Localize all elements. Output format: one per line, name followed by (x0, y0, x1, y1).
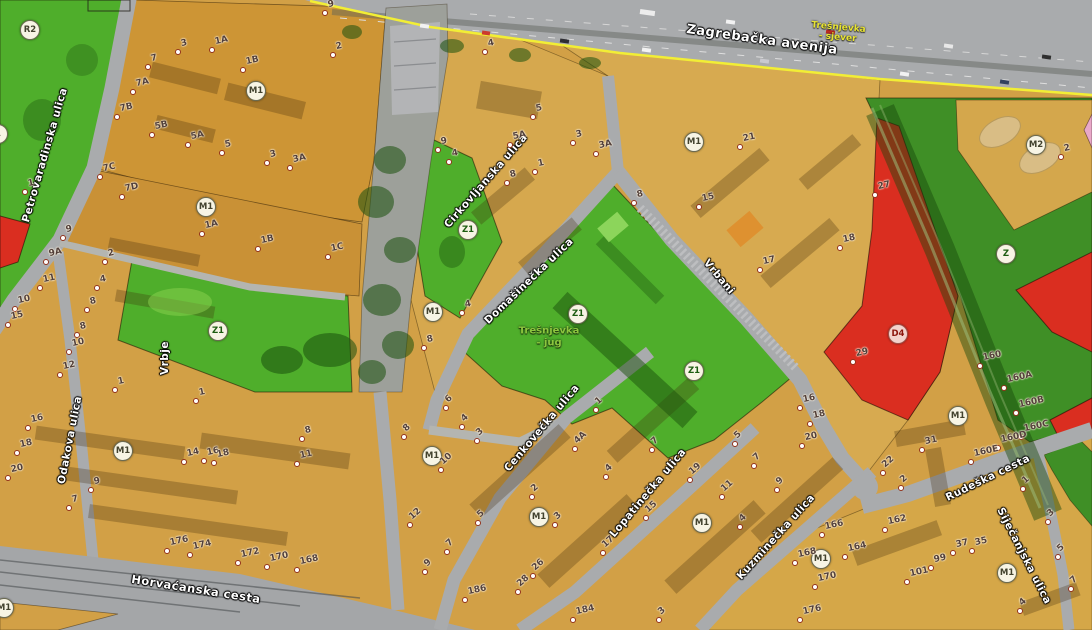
house-number-label: 5A (190, 129, 205, 142)
address-dot-icon (751, 463, 757, 469)
address-dot-icon (459, 310, 465, 316)
address-dot-icon (919, 447, 925, 453)
house-number-label: 3 (474, 426, 485, 438)
address-dot-icon (507, 142, 513, 148)
house-number-label: 160E (973, 444, 999, 459)
house-number-label: 22 (880, 454, 896, 470)
address-dot-icon (1068, 586, 1074, 592)
address-dot-icon (1058, 154, 1064, 160)
house-number-label: 4 (99, 274, 107, 285)
house-number-label: 3 (575, 129, 583, 140)
address-dot-icon (1013, 410, 1019, 416)
house-number-label: 3 (269, 149, 277, 160)
house-number-label: 176 (169, 534, 189, 548)
house-number-label: 2 (898, 473, 909, 485)
address-dot-icon (797, 617, 803, 623)
house-number-label: 8 (89, 296, 97, 307)
zone-code-badge-z1-4[interactable]: Z1 (208, 321, 228, 341)
address-dot-icon (807, 421, 813, 427)
house-number-label: 5 (224, 139, 232, 150)
street-label-horva-anska-cesta: Horvaćanska cesta (130, 572, 261, 606)
address-dot-icon (330, 52, 336, 58)
house-number-label: 8 (426, 334, 434, 345)
address-dot-icon (114, 114, 120, 120)
house-number-label: 170 (817, 570, 837, 584)
address-dot-icon (797, 405, 803, 411)
house-number-label: 4A (572, 430, 589, 446)
house-number-label: 4 (1017, 596, 1028, 608)
house-number-label: 186 (467, 583, 487, 597)
address-dot-icon (732, 441, 738, 447)
address-dot-icon (530, 573, 536, 579)
house-number-label: 7 (751, 451, 762, 463)
zone-code-badge-m1-20[interactable]: M1 (0, 598, 14, 618)
house-number-label: 174 (192, 538, 212, 552)
address-dot-icon (504, 180, 510, 186)
address-dot-icon (474, 438, 480, 444)
address-dot-icon (209, 47, 215, 53)
house-number-label: 5 (732, 429, 743, 441)
address-dot-icon (737, 524, 743, 530)
address-dot-icon (819, 532, 825, 538)
house-number-label: 9 (422, 557, 433, 569)
house-number-label: 28 (515, 573, 531, 589)
zone-code-badge-z1-8[interactable]: Z1 (684, 361, 704, 381)
address-dot-icon (882, 527, 888, 533)
house-number-label: 7 (444, 537, 455, 549)
house-number-label: 9 (65, 224, 73, 235)
address-dot-icon (185, 142, 191, 148)
address-dot-icon (649, 447, 655, 453)
house-number-label: 164 (847, 540, 867, 554)
address-dot-icon (774, 487, 780, 493)
house-number-label: 1B (245, 54, 260, 67)
zone-code-badge-z1-5[interactable]: Z1 (458, 220, 478, 240)
address-dot-icon (529, 494, 535, 500)
address-dot-icon (219, 150, 225, 156)
street-label-kuzmine-ka-ulica: Kuzminečka ulica (735, 492, 818, 582)
house-number-label: 1A (214, 34, 229, 47)
area-label-tre-njevka-jug: Trešnjevka- jug (519, 326, 580, 349)
address-dot-icon (438, 467, 444, 473)
house-number-label: 31 (924, 435, 938, 447)
address-dot-icon (102, 259, 108, 265)
area-label-line: Trešnjevka (519, 326, 580, 338)
address-dot-icon (14, 450, 20, 456)
address-dot-icon (757, 267, 763, 273)
house-number-label: 4 (459, 412, 470, 424)
house-number-label: 4 (603, 462, 614, 474)
house-number-label: 176 (802, 603, 822, 617)
address-dot-icon (164, 548, 170, 554)
address-dot-icon (25, 425, 31, 431)
address-dot-icon (593, 407, 599, 413)
address-dot-icon (950, 550, 956, 556)
address-dot-icon (603, 474, 609, 480)
house-number-label: 17 (762, 255, 776, 267)
house-number-label: 9A (48, 246, 63, 259)
house-number-label: 3 (656, 605, 667, 617)
address-dot-icon (43, 259, 49, 265)
area-label-line: - jug (519, 337, 580, 349)
street-label-vrbani: Vrbani (701, 257, 737, 297)
house-number-label: 8 (509, 169, 517, 180)
zone-code-badge-m2-10[interactable]: M2 (1026, 135, 1046, 155)
zone-code-badge-d4-12[interactable]: D4 (888, 324, 908, 344)
house-number-label: 9 (774, 475, 785, 487)
address-dot-icon (475, 520, 481, 526)
area-label-tre-njevka-sjever: Trešnjevka- sjever (810, 20, 866, 45)
address-dot-icon (1001, 385, 1007, 391)
house-number-label: 2 (1063, 143, 1071, 154)
address-dot-icon (187, 552, 193, 558)
zone-code-badge-z-11[interactable]: Z (996, 244, 1016, 264)
house-number-label: 101 (909, 565, 929, 579)
house-number-label: 21 (742, 132, 756, 144)
address-dot-icon (287, 165, 293, 171)
house-number-label: 26 (530, 557, 546, 573)
address-dot-icon (264, 160, 270, 166)
address-dot-icon (600, 550, 606, 556)
address-dot-icon (299, 436, 305, 442)
house-number-label: 1 (1020, 474, 1031, 486)
house-number-label: 3 (552, 510, 563, 522)
house-number-label: 8 (636, 189, 644, 200)
address-dot-icon (60, 235, 66, 241)
address-dot-icon (97, 174, 103, 180)
address-dot-icon (119, 194, 125, 200)
address-dot-icon (572, 446, 578, 452)
house-number-label: 162 (887, 513, 907, 527)
house-number-label: 18 (19, 438, 33, 450)
address-dot-icon (880, 470, 886, 476)
house-number-label: 160D (1000, 430, 1028, 445)
house-number-label: 9 (327, 0, 335, 10)
address-dot-icon (532, 169, 538, 175)
house-number-label: 1 (117, 376, 125, 387)
address-dot-icon (799, 443, 805, 449)
house-number-label: 17 (600, 534, 616, 550)
house-number-label: 1C (330, 242, 345, 254)
address-dot-icon (444, 549, 450, 555)
address-dot-icon (446, 159, 452, 165)
street-label-doma-ine-ka-ulica: Domašinečka ulica (482, 235, 576, 326)
address-dot-icon (593, 151, 599, 157)
zone-code-badge-m1-19[interactable]: M1 (997, 563, 1017, 583)
house-number-label: 14 (186, 447, 200, 459)
house-number-label: 5 (535, 103, 543, 114)
house-number-label: 11 (299, 449, 313, 461)
map-viewport[interactable]: Petrovaradinska ulicaOdakova ulicaCirkov… (0, 0, 1092, 630)
house-number-label: 12 (407, 506, 423, 522)
house-number-label: 20 (10, 463, 24, 475)
house-number-label: 11 (42, 273, 56, 285)
house-number-label: 4 (464, 299, 472, 310)
address-dot-icon (145, 64, 151, 70)
address-dot-icon (812, 584, 818, 590)
address-dot-icon (37, 285, 43, 291)
street-label-vrbje: Vrbje (159, 341, 171, 375)
address-dot-icon (325, 254, 331, 260)
house-number-label: 4 (451, 148, 459, 159)
house-number-label: 8 (304, 425, 312, 436)
house-number-label: 160C (1023, 419, 1050, 434)
address-dot-icon (264, 564, 270, 570)
zone-code-badge-m1-14[interactable]: M1 (113, 441, 133, 461)
map-label-layer: Petrovaradinska ulicaOdakova ulicaCirkov… (0, 0, 1092, 630)
address-dot-icon (842, 554, 848, 560)
house-number-label: 2 (335, 41, 343, 52)
address-dot-icon (570, 140, 576, 146)
address-dot-icon (66, 505, 72, 511)
address-dot-icon (719, 494, 725, 500)
zone-code-badge-r2-0[interactable]: R2 (20, 20, 40, 40)
address-dot-icon (199, 231, 205, 237)
area-label-line: - sjever (810, 31, 865, 46)
house-number-label: 1 (198, 387, 206, 398)
house-number-label: 5 (1055, 542, 1066, 554)
address-dot-icon (631, 200, 637, 206)
address-dot-icon (968, 459, 974, 465)
house-number-label: 172 (240, 546, 260, 560)
house-number-label: 160B (1018, 395, 1045, 410)
address-dot-icon (211, 460, 217, 466)
house-number-label: 99 (933, 553, 947, 565)
address-dot-icon (530, 114, 536, 120)
house-number-label: 184 (575, 603, 595, 617)
house-number-label: 1B (260, 233, 275, 246)
address-dot-icon (656, 617, 662, 623)
house-number-label: 1 (537, 158, 545, 169)
address-dot-icon (193, 398, 199, 404)
house-number-label: 12 (62, 360, 76, 372)
address-dot-icon (322, 10, 328, 16)
house-number-label: 7B (119, 101, 134, 114)
address-dot-icon (94, 285, 100, 291)
zone-code-badge-m1-16[interactable]: M1 (529, 507, 549, 527)
house-number-label: 18 (842, 233, 856, 245)
address-dot-icon (422, 569, 428, 575)
zone-code-badge-m1-13[interactable]: M1 (948, 406, 968, 426)
address-dot-icon (421, 345, 427, 351)
house-number-label: 7 (71, 494, 79, 505)
address-dot-icon (904, 579, 910, 585)
address-dot-icon (570, 617, 576, 623)
house-number-label: 5 (475, 508, 486, 520)
street-label-odakova-ulica: Odakova ulica (56, 395, 85, 485)
house-number-label: 1 (593, 395, 604, 407)
house-number-label: 4 (737, 512, 748, 524)
address-dot-icon (1020, 486, 1026, 492)
house-number-label: 15 (643, 499, 659, 515)
house-number-label: 170 (269, 550, 289, 564)
house-number-label: 8 (401, 422, 412, 434)
address-dot-icon (459, 424, 465, 430)
house-number-label: 4 (487, 38, 495, 49)
house-number-label: 160 (982, 349, 1002, 363)
house-number-label: 18 (216, 448, 230, 460)
zone-code-badge-1-1[interactable]: 1 (0, 124, 8, 144)
address-dot-icon (552, 522, 558, 528)
address-dot-icon (792, 560, 798, 566)
address-dot-icon (201, 458, 207, 464)
address-dot-icon (112, 387, 118, 393)
house-number-label: 20 (804, 431, 818, 443)
address-dot-icon (687, 477, 693, 483)
house-number-label: 1 (27, 178, 35, 189)
address-dot-icon (898, 485, 904, 491)
house-number-label: 168 (299, 553, 319, 567)
address-dot-icon (1045, 519, 1051, 525)
house-number-label: 7 (1068, 574, 1079, 586)
house-number-label: 5B (154, 119, 169, 132)
address-dot-icon (181, 459, 187, 465)
address-dot-icon (872, 192, 878, 198)
address-dot-icon (57, 372, 63, 378)
house-number-label: 9 (93, 476, 101, 487)
address-dot-icon (977, 363, 983, 369)
zone-code-badge-m1-17[interactable]: M1 (692, 513, 712, 533)
street-label-zagreba-ka-avenija: Zagrebačka avenija (685, 22, 838, 58)
area-label-line: Trešnjevka (811, 20, 866, 35)
address-dot-icon (928, 565, 934, 571)
house-number-label: 166 (824, 518, 844, 532)
zone-code-badge-m1-2[interactable]: M1 (246, 81, 266, 101)
house-number-label: 10 (71, 337, 85, 349)
house-number-label: 35 (974, 536, 988, 548)
address-dot-icon (294, 461, 300, 467)
address-dot-icon (401, 434, 407, 440)
address-dot-icon (515, 589, 521, 595)
house-number-label: 27 (877, 180, 891, 192)
street-label-cirkovljanska-ulica: Cirkovljanska ulica (442, 132, 530, 231)
house-number-label: 7C (102, 162, 117, 174)
zone-code-badge-z1-7[interactable]: Z1 (568, 304, 588, 324)
house-number-label: 37 (955, 538, 969, 550)
address-dot-icon (240, 67, 246, 73)
house-number-label: 9 (440, 136, 448, 147)
address-dot-icon (5, 475, 11, 481)
house-number-label: 18 (812, 409, 826, 421)
zone-code-badge-m1-9[interactable]: M1 (684, 132, 704, 152)
address-dot-icon (696, 204, 702, 210)
address-dot-icon (969, 548, 975, 554)
street-label-lopatine-ka-ulica: Lopatinečka ulica (607, 446, 688, 540)
house-number-label: 15 (10, 310, 24, 322)
house-number-label: 1A (204, 218, 219, 231)
house-number-label: 7 (649, 435, 660, 447)
house-number-label: 5A (512, 129, 527, 142)
address-dot-icon (235, 560, 241, 566)
address-dot-icon (1055, 554, 1061, 560)
address-dot-icon (22, 189, 28, 195)
house-number-label: 7D (124, 181, 140, 194)
zone-code-badge-m1-15[interactable]: M1 (422, 446, 442, 466)
house-number-label: 11 (719, 478, 735, 494)
house-number-label: 7 (150, 53, 158, 64)
house-number-label: 16 (802, 393, 816, 405)
house-number-label: 2 (107, 248, 115, 259)
address-dot-icon (837, 245, 843, 251)
house-number-label: 3 (180, 38, 188, 49)
street-label-petrovaradinska-ulica: Petrovaradinska ulica (20, 86, 70, 223)
address-dot-icon (435, 147, 441, 153)
address-dot-icon (88, 487, 94, 493)
house-number-label: 3A (598, 138, 613, 151)
address-dot-icon (5, 322, 11, 328)
address-dot-icon (294, 567, 300, 573)
address-dot-icon (443, 405, 449, 411)
address-dot-icon (149, 132, 155, 138)
address-dot-icon (175, 49, 181, 55)
house-number-label: 15 (701, 192, 715, 204)
street-label-cenkove-ka-ulica: Cenkovečka ulica (502, 382, 582, 474)
address-dot-icon (255, 246, 261, 252)
house-number-label: 19 (687, 461, 703, 477)
address-dot-icon (462, 597, 468, 603)
house-number-label: 7A (135, 76, 150, 89)
address-dot-icon (643, 515, 649, 521)
address-dot-icon (66, 349, 72, 355)
address-dot-icon (482, 49, 488, 55)
address-dot-icon (84, 307, 90, 313)
house-number-label: 16 (30, 413, 44, 425)
house-number-label: 10 (17, 294, 31, 306)
house-number-label: 8 (79, 321, 87, 332)
zone-code-badge-m1-6[interactable]: M1 (423, 302, 443, 322)
house-number-label: 160A (1006, 370, 1033, 385)
address-dot-icon (407, 522, 413, 528)
address-dot-icon (130, 89, 136, 95)
house-number-label: 29 (855, 347, 869, 359)
address-dot-icon (850, 359, 856, 365)
house-number-label: 3 (1045, 507, 1056, 519)
house-number-label: 6 (443, 393, 454, 405)
house-number-label: 2 (529, 482, 540, 494)
zone-code-badge-m1-3[interactable]: M1 (196, 197, 216, 217)
house-number-label: 3A (292, 152, 307, 165)
address-dot-icon (1017, 608, 1023, 614)
address-dot-icon (737, 144, 743, 150)
